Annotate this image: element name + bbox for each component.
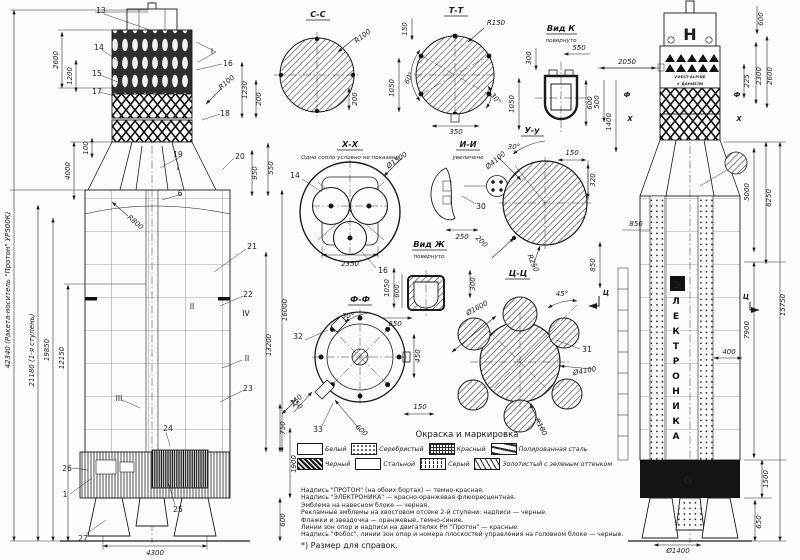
l-callout-14: 14	[94, 43, 104, 52]
ff-angle-30: 30°	[342, 312, 354, 320]
legend-item-gray: Серый	[420, 458, 469, 470]
section-tsts-title: Ц-Ц	[509, 268, 528, 278]
section-tsts	[452, 279, 599, 432]
vidzh-dim-300: 300	[469, 277, 477, 291]
swatch-red	[429, 443, 455, 455]
tsts-angle-45: 45°	[556, 290, 568, 298]
section-tt	[399, 16, 496, 126]
tsts-callout-31: 31	[582, 345, 592, 354]
legend-label: Белый	[325, 446, 346, 453]
view-k-title: Вид К	[547, 23, 576, 33]
l-dim-13200: 13200	[265, 333, 273, 356]
margin-100: 100	[82, 141, 90, 155]
r-dim-500: 500	[593, 95, 601, 109]
r-dim-225: 225	[743, 74, 751, 88]
uu-dim-4100: Ø4100	[483, 150, 507, 172]
view-zh-title: Вид Ж	[413, 239, 445, 249]
r-logo-danieli: ★ ДАНИЕЛИ	[677, 82, 704, 86]
section-ff-title: Ф-Ф	[350, 294, 370, 304]
margin-12150: 12150	[58, 346, 66, 369]
note-line: Флажки и звездочка — оранжевые, темно-си…	[301, 517, 639, 524]
cc-dim-200: 200	[351, 92, 359, 106]
margin-1200: 1200	[66, 67, 74, 85]
note-line: Надпись "ПРОТОН" (на обоих бортах) — тем…	[301, 487, 639, 494]
swatch-black	[297, 458, 323, 470]
electronika-body-lettering: ЛЕКТРОНИКА	[671, 297, 681, 487]
tt-angle-60: 60°	[403, 71, 416, 86]
vidzh-dim-600: 600	[393, 284, 401, 298]
legend-label: Красный	[457, 446, 486, 453]
l-dim-1230: 1230	[241, 81, 249, 99]
uu-dim-320: 320	[589, 173, 597, 187]
swatch-polished-steel	[491, 443, 517, 455]
l-callout-25: 25	[173, 505, 183, 514]
section-cc	[274, 20, 360, 118]
l-plane-III: III	[116, 394, 123, 403]
legend-row-2: Черный Стальной Серый Золотистый с зелен…	[297, 458, 637, 470]
ii-dim-250: 250	[455, 233, 469, 241]
section-xx-title: Х-Х	[341, 139, 359, 149]
section-ii-sub: увеличено	[451, 155, 484, 161]
uu-dim-r250: R250	[526, 253, 540, 273]
margin-2600: 2600	[52, 51, 60, 69]
r-emblem-g: G	[683, 474, 692, 487]
l-plane-IIb: II	[245, 354, 249, 363]
r-mark-x2: Х	[735, 115, 742, 123]
vidk-dim-300: 300	[525, 51, 533, 65]
r-dim-1500: 1500	[762, 470, 770, 488]
uu-dim-150: 150	[565, 149, 579, 157]
r-mark-x: Х	[626, 115, 633, 123]
section-ff	[294, 305, 434, 430]
margin-4000: 4000	[64, 162, 72, 180]
l-callout-26: 26	[62, 464, 72, 473]
vidk-dim-1050: 1050	[508, 95, 516, 113]
l-callout-13: 13	[96, 6, 106, 15]
l-callout-19: 19	[173, 150, 183, 159]
legend-label: Полированная сталь	[519, 446, 588, 453]
r-dim-650: 650	[755, 515, 763, 529]
ff-callout-32: 32	[293, 332, 303, 341]
tt-angle-30: 30°	[488, 91, 502, 106]
paint-marking-legend: Окраска и маркировка Белый Серебристый К…	[297, 430, 637, 473]
l-dim-750: 750	[279, 421, 287, 435]
view-zh	[382, 250, 470, 318]
l-plane-I: I	[211, 47, 213, 56]
xx-dim-2350: 2350	[341, 260, 359, 268]
legend-item-white: Белый	[297, 443, 346, 455]
r-dim-600: 600	[757, 12, 765, 26]
section-xx-note: Одно сопло условно не показано	[301, 155, 399, 161]
r-mark-f: Ф	[624, 91, 631, 99]
swatch-steel	[355, 458, 381, 470]
l-dim-200: 200	[255, 92, 263, 106]
l-callout-21: 21	[247, 242, 257, 251]
r-dim-5000: 5000	[743, 183, 751, 201]
section-cc-title: С-С	[310, 9, 325, 19]
swatch-gray	[420, 458, 446, 470]
l-callout-16: 16	[223, 59, 233, 68]
drawing-sheet: С-С R100 200 Т-Т R150 150 1050 60° 30° 3…	[0, 0, 800, 560]
legend-item-silver: Серебристый	[351, 443, 423, 455]
ff-dim-150: 150	[413, 403, 427, 411]
legend-label: Серебристый	[379, 446, 423, 453]
r-emblem-n: Н	[683, 25, 696, 44]
note-line: Надпись "Фобос", линии зон опор и номера…	[301, 531, 639, 538]
swatch-gold	[474, 458, 500, 470]
ii-callout-30: 30	[476, 202, 486, 211]
l-plane-Ib: I	[177, 163, 179, 172]
vidzh-dim-1050: 1050	[383, 279, 391, 297]
r-dim-850b: 850	[589, 258, 597, 272]
r-dim-7900: 7900	[743, 321, 751, 339]
l-dim-4300: 4300	[146, 549, 164, 557]
l-callout-27: 27	[78, 534, 88, 543]
r-dim-15750: 15750	[779, 293, 787, 316]
section-uu-title: У-у	[524, 125, 540, 135]
xx-callout-14: 14	[290, 171, 300, 180]
tsts-dim-4100: Ø4100	[571, 365, 597, 377]
l-callout-20: 20	[235, 152, 245, 161]
legend-label: Стальной	[383, 461, 415, 468]
l-plane-II: II	[190, 302, 194, 311]
view-zh-sub: повернуто	[413, 254, 445, 260]
legend-item-red: Красный	[429, 443, 486, 455]
legend-label: Серый	[448, 461, 469, 468]
r-dim-dia1400: Ø1400	[665, 547, 690, 555]
r-mark-ts: Ц	[743, 293, 749, 301]
uu-dim-200: 200	[474, 234, 489, 249]
legend-item-polished-steel: Полированная сталь	[491, 443, 588, 455]
legend-row-1: Белый Серебристый Красный Полированная с…	[297, 443, 637, 455]
note-line: Надпись "ЭЛЕКТРОНИКА" — красно-оранжевая…	[301, 494, 639, 501]
l-callout-15: 15	[92, 69, 102, 78]
l-dim-600: 600	[279, 513, 287, 527]
swatch-silver	[351, 443, 377, 455]
tt-dim-1050: 1050	[388, 79, 396, 97]
l-callout-6: 6	[178, 189, 183, 198]
tsts-dim-1600: Ø1600	[464, 299, 490, 318]
r-dim-2600: 2600	[766, 67, 774, 85]
margin-stage1: 21180 (1-я ступень)	[28, 313, 36, 386]
tt-dim-150: 150	[401, 22, 409, 36]
r-dim-6250: 6250	[765, 189, 773, 207]
section-tt-title: Т-Т	[449, 5, 465, 15]
r-dim-1400: 1400	[605, 113, 613, 131]
l-dim-950: 950	[251, 166, 259, 180]
r-dim-850a: 850	[629, 220, 643, 228]
cc-dim-r100: R100	[353, 27, 373, 45]
l-callout-1: 1	[63, 490, 68, 499]
l-dim-r100: R100	[217, 73, 237, 91]
xx-callout-16: 16	[378, 266, 388, 275]
legend-item-steel: Стальной	[355, 458, 415, 470]
legend-title: Окраска и маркировка	[297, 430, 637, 440]
margin-total: 42340 (Ракета-носитель "Протон" УР500К)	[4, 211, 12, 368]
legend-item-gold: Золотистый с зеленым оттенком	[474, 458, 612, 470]
tt-dim-r150: R150	[487, 19, 506, 27]
r-dim-400: 400	[722, 348, 736, 356]
ff-dim-450: 450	[414, 349, 422, 363]
l-dim-16000: 16000	[281, 298, 289, 321]
r-dim-2300: 2300	[755, 67, 763, 85]
l-callout-22: 22	[243, 290, 253, 299]
l-callout-18: 18	[220, 109, 230, 118]
l-plane-IV: IV	[242, 309, 250, 318]
l-callout-23: 23	[243, 384, 253, 393]
l-dim-550: 550	[267, 161, 275, 175]
r-emblem-e: Э	[674, 280, 681, 291]
r-logo-voest: VOEST-ALPINE	[674, 75, 705, 79]
uu-angle-30: 30°	[508, 143, 520, 151]
r-mark-f2: Ф	[734, 91, 741, 99]
note-line: Рекламные эмблемы на хвостовом отсеке 2-…	[301, 509, 639, 516]
legend-label: Золотистый с зеленым оттенком	[502, 461, 612, 468]
legend-item-black: Черный	[297, 458, 350, 470]
section-ii-title: И-И	[459, 139, 476, 149]
r-dim-2050: 2050	[618, 58, 636, 66]
l-callout-17: 17	[92, 87, 102, 96]
reference-footnote: *) Размер для справок.	[301, 541, 398, 550]
swatch-white	[297, 443, 323, 455]
legend-label: Черный	[325, 461, 350, 468]
marking-notes: Надпись "ПРОТОН" (на обоих бортах) — тем…	[301, 487, 639, 539]
margin-19850: 19850	[43, 338, 51, 361]
l-callout-24: 24	[163, 424, 173, 433]
vidk-dim-550: 550	[572, 44, 586, 52]
tsts-cut-mark: Ц	[603, 289, 609, 297]
tt-dim-350: 350	[449, 128, 463, 136]
